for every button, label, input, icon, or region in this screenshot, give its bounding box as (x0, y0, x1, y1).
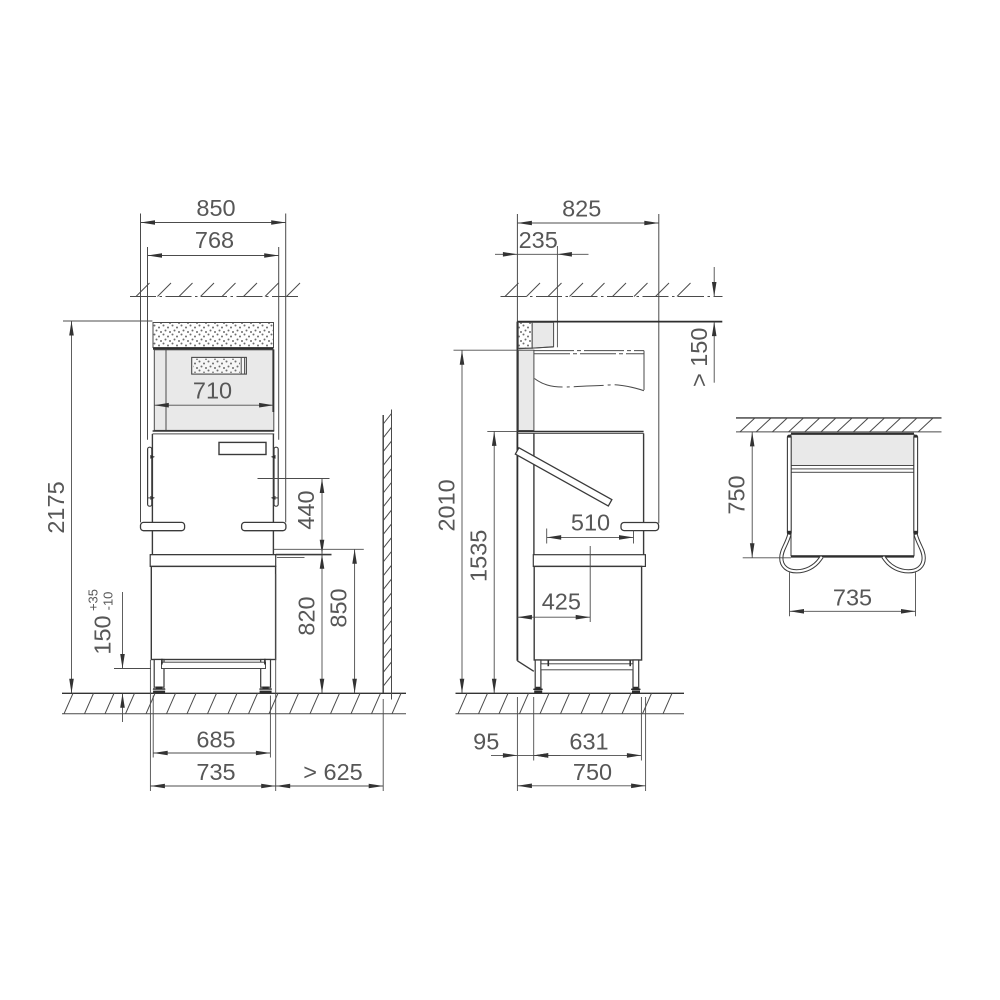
svg-text:1535: 1535 (466, 530, 492, 582)
svg-text:825: 825 (562, 196, 601, 222)
svg-text:440: 440 (293, 490, 319, 529)
svg-text:425: 425 (542, 589, 581, 615)
svg-text:-10: -10 (101, 592, 116, 611)
svg-text:820: 820 (294, 596, 320, 635)
svg-text:710: 710 (193, 377, 232, 403)
svg-text:> 625: > 625 (303, 759, 362, 785)
svg-text:631: 631 (569, 728, 608, 754)
svg-text:235: 235 (519, 227, 558, 253)
svg-text:2175: 2175 (43, 481, 69, 533)
svg-text:2010: 2010 (434, 479, 460, 531)
svg-text:850: 850 (326, 588, 352, 627)
svg-text:95: 95 (473, 728, 499, 754)
svg-text:768: 768 (195, 227, 234, 253)
svg-text:850: 850 (196, 195, 235, 221)
svg-text:735: 735 (196, 759, 235, 785)
svg-text:735: 735 (833, 584, 872, 610)
svg-text:750: 750 (573, 759, 612, 785)
svg-text:150: 150 (90, 615, 116, 654)
svg-text:> 150: > 150 (686, 328, 712, 387)
svg-text:+35: +35 (86, 589, 101, 611)
svg-text:510: 510 (571, 509, 610, 535)
svg-text:750: 750 (724, 475, 750, 514)
svg-text:685: 685 (196, 727, 235, 753)
